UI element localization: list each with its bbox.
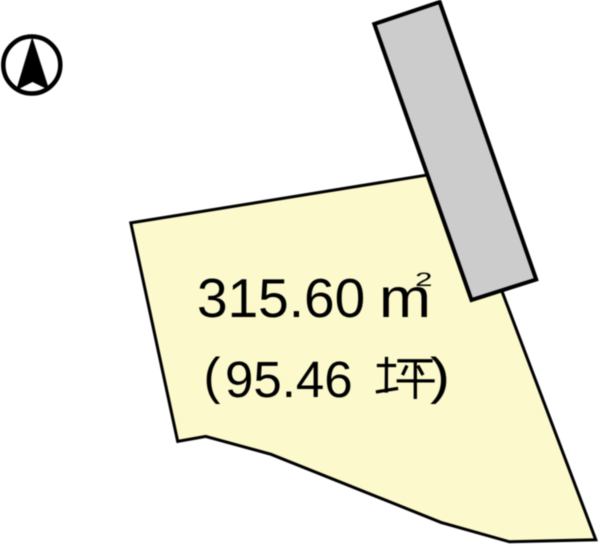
svg-text:2: 2 [415, 270, 433, 291]
svg-text:315.60: 315.60 [197, 267, 365, 329]
svg-text:(: ( [204, 348, 221, 405]
svg-text:95.46: 95.46 [225, 351, 353, 408]
svg-text:): ) [430, 348, 450, 405]
